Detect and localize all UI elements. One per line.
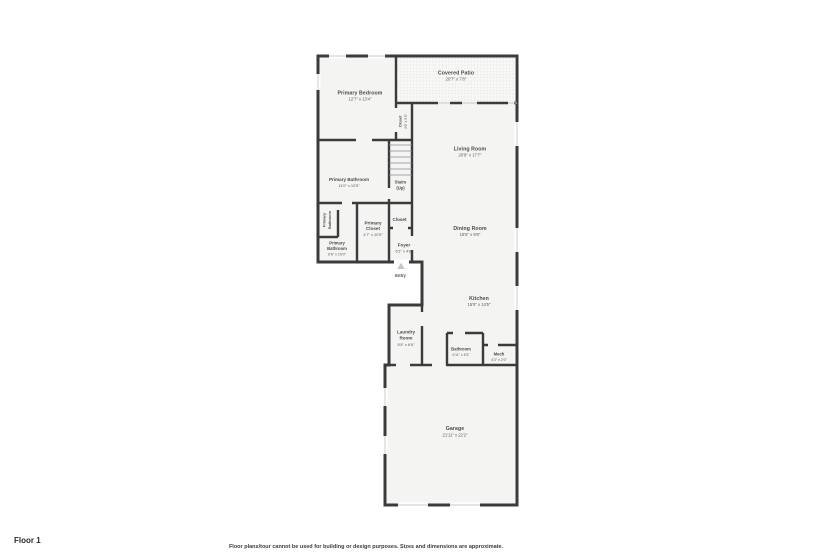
- room-primary-bathroom-2: Primary Bathroom: [323, 210, 332, 229]
- entry-label: Entry: [395, 273, 406, 278]
- primary-bathroom-3-label-line1: Primary: [329, 241, 345, 246]
- primary-bathroom-2-label-line1: Primary: [323, 212, 327, 227]
- room-garage: Garage 21'11" x 22'2": [443, 426, 468, 438]
- closet-upper-label: Closet: [399, 115, 403, 127]
- building-footprint: [318, 56, 517, 505]
- covered-patio-dims: 20'7" x 7'8": [446, 77, 467, 82]
- primary-bathroom-2-label-line2: Bathroom: [328, 210, 332, 229]
- primary-closet-label-line2: Closet: [366, 226, 381, 231]
- kitchen-dims: 15'9" x 14'5": [468, 302, 491, 307]
- primary-closet-label-line1: Primary: [364, 221, 382, 226]
- laundry-room-dims: 5'4" x 6'6": [397, 342, 415, 347]
- bathroom-dims: 4'11" x 5'3": [452, 353, 470, 357]
- closet-hall-label: Closet: [392, 217, 407, 222]
- garage-dims: 21'11" x 22'2": [443, 433, 468, 438]
- closet-upper-dims: 2'6" x 5'5": [404, 113, 408, 129]
- living-room-dims: 20'8" x 17'7": [459, 153, 482, 158]
- foyer-label: Foyer: [398, 243, 411, 248]
- primary-bedroom-dims: 12'7" x 13'4": [349, 97, 372, 102]
- foyer-dims: 6'1" x 4'8": [395, 249, 413, 254]
- entry-marker: Entry: [395, 273, 406, 278]
- floor-plan-canvas: Primary Bedroom 12'7" x 13'4" Covered Pa…: [0, 0, 840, 559]
- primary-bathroom-3-label-line2: Bathroom: [327, 246, 347, 251]
- mech-dims: 4'3" x 2'0": [491, 358, 507, 362]
- laundry-room-label-line1: Laundry: [397, 330, 416, 335]
- primary-bathroom-3-dims: 6'6" x 10'0": [328, 253, 346, 257]
- primary-closet-dims: 4'7" x 10'5": [363, 232, 383, 237]
- mech-label: Mech: [494, 352, 505, 357]
- bathroom-label: Bathroom: [451, 347, 471, 352]
- stairs-label: Stairs: [395, 180, 407, 185]
- floor-plan-page: Primary Bedroom 12'7" x 13'4" Covered Pa…: [0, 0, 840, 559]
- stairs-direction: (Up): [396, 185, 405, 190]
- disclaimer-text: Floor plans/tour cannot be used for buil…: [229, 544, 503, 550]
- garage-label: Garage: [446, 426, 464, 432]
- floor-selector-label: Floor 1: [14, 536, 41, 545]
- room-primary-bathroom-3: Primary Bathroom 6'6" x 10'0": [327, 241, 347, 257]
- dining-room-dims: 16'5" x 9'8": [460, 232, 481, 237]
- primary-bathroom-label: Primary Bathroom: [329, 177, 369, 182]
- laundry-room-label-line2: Room: [399, 336, 412, 341]
- primary-bathroom-dims: 11'0" x 10'5": [338, 183, 360, 188]
- room-closet-hall: Closet: [392, 217, 407, 222]
- room-kitchen: Kitchen 15'9" x 14'5": [468, 296, 491, 307]
